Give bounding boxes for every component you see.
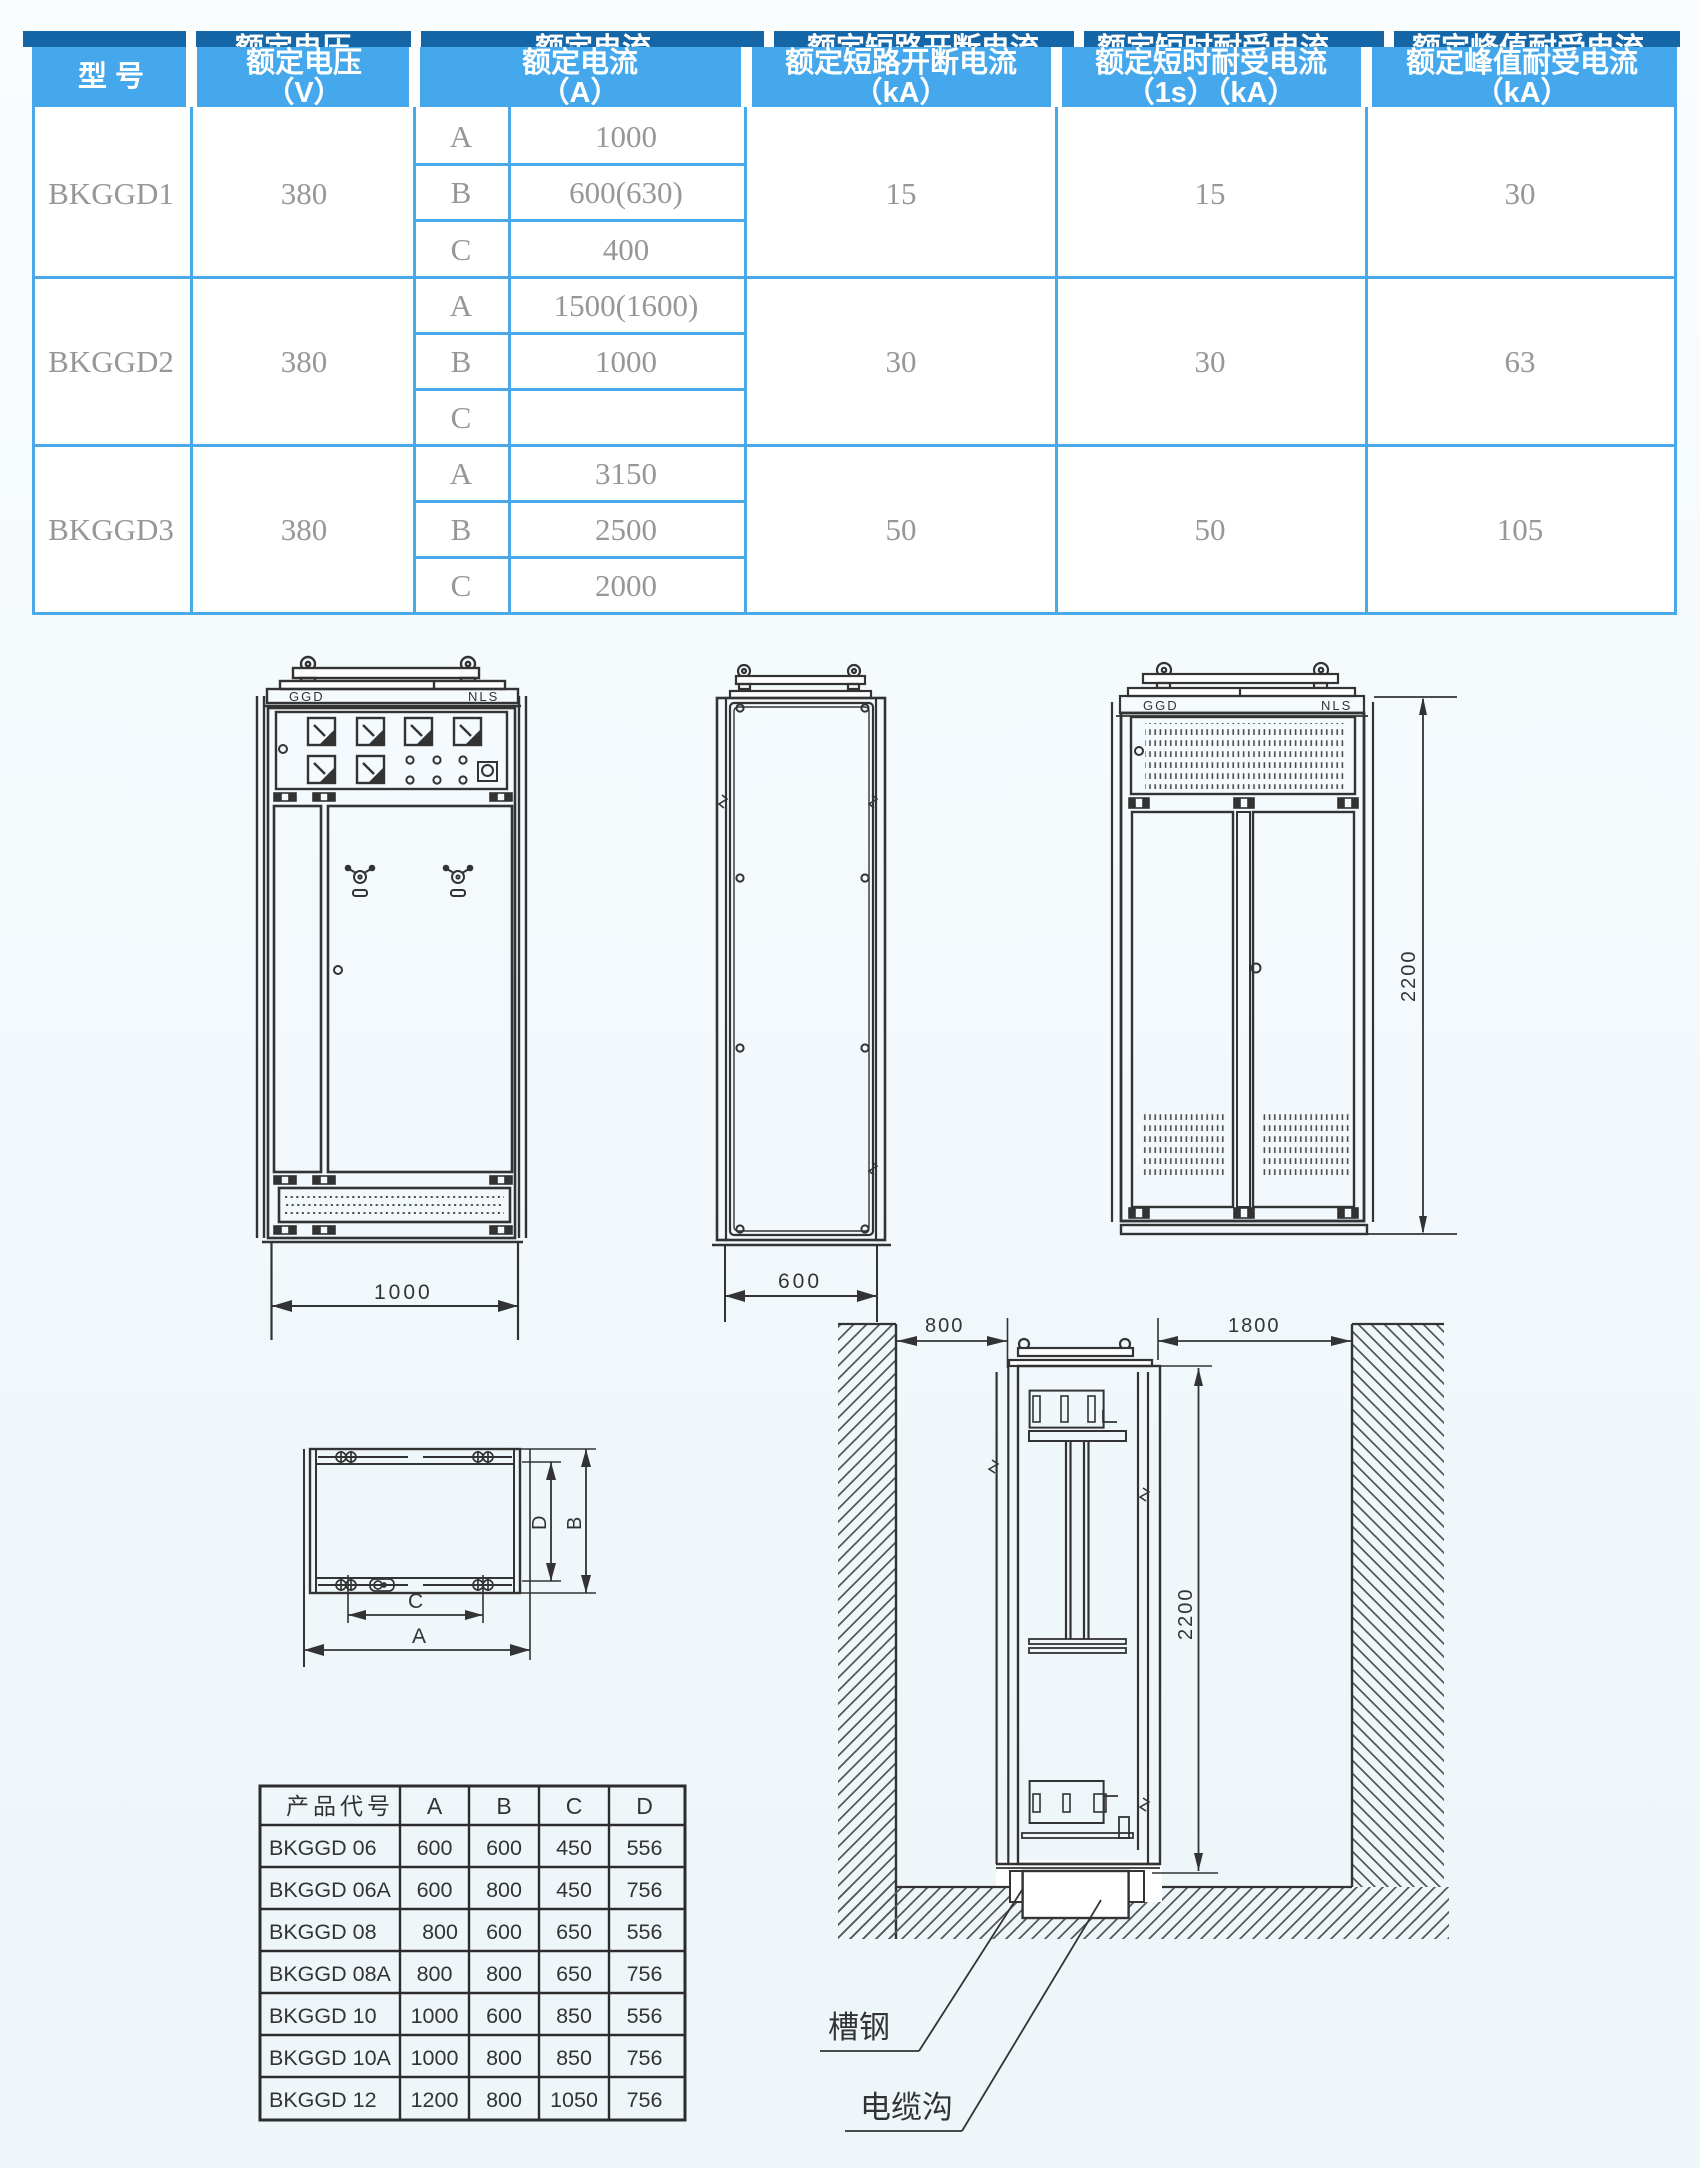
svg-text:A: A (412, 1625, 426, 1648)
svg-text:D: D (529, 1516, 551, 1530)
svg-text:756: 756 (627, 1962, 663, 1986)
svg-text:1000: 1000 (374, 1281, 433, 1304)
svg-text:C: C (566, 1793, 583, 1819)
svg-text:BKGGD 06: BKGGD 06 (269, 1836, 377, 1860)
svg-text:BKGGD 12: BKGGD 12 (269, 2088, 377, 2112)
svg-text:800: 800 (486, 2088, 522, 2112)
svg-text:1200: 1200 (411, 2088, 459, 2112)
svg-text:800: 800 (422, 1920, 458, 1944)
svg-text:450: 450 (556, 1836, 592, 1860)
svg-text:BKGGD 08A: BKGGD 08A (269, 1962, 392, 1986)
svg-text:C: C (408, 1590, 423, 1613)
svg-text:756: 756 (627, 1878, 663, 1902)
svg-text:756: 756 (627, 2046, 663, 2070)
svg-text:GGD: GGD (1143, 698, 1179, 713)
svg-text:650: 650 (556, 1962, 592, 1986)
svg-text:B: B (564, 1517, 586, 1530)
svg-text:600: 600 (778, 1270, 822, 1293)
svg-text:BKGGD 08: BKGGD 08 (269, 1920, 377, 1944)
svg-text:800: 800 (925, 1315, 964, 1337)
svg-text:产品代号: 产品代号 (286, 1793, 394, 1819)
svg-text:800: 800 (486, 1962, 522, 1986)
svg-text:450: 450 (556, 1878, 592, 1902)
svg-text:600: 600 (486, 2004, 522, 2028)
svg-text:B: B (496, 1793, 511, 1819)
svg-text:NLS: NLS (468, 689, 499, 704)
svg-text:NLS: NLS (1321, 698, 1352, 713)
svg-text:电缆沟: 电缆沟 (860, 2090, 953, 2125)
svg-text:1050: 1050 (550, 2088, 598, 2112)
svg-text:A: A (427, 1793, 443, 1819)
svg-text:556: 556 (627, 2004, 663, 2028)
svg-text:600: 600 (417, 1836, 453, 1860)
svg-text:1800: 1800 (1228, 1315, 1281, 1337)
svg-text:BKGGD 06A: BKGGD 06A (269, 1878, 392, 1902)
svg-text:850: 850 (556, 2046, 592, 2070)
svg-text:D: D (636, 1793, 653, 1819)
svg-text:BKGGD 10A: BKGGD 10A (269, 2046, 392, 2070)
svg-text:2200: 2200 (1398, 950, 1420, 1003)
svg-text:GGD: GGD (289, 689, 325, 704)
svg-text:1000: 1000 (411, 2046, 459, 2070)
svg-text:800: 800 (486, 1878, 522, 1902)
svg-text:BKGGD 10: BKGGD 10 (269, 2004, 377, 2028)
svg-text:1000: 1000 (411, 2004, 459, 2028)
svg-text:600: 600 (486, 1920, 522, 1944)
svg-text:800: 800 (417, 1962, 453, 1986)
svg-text:850: 850 (556, 2004, 592, 2028)
svg-text:槽钢: 槽钢 (828, 2010, 890, 2045)
svg-text:756: 756 (627, 2088, 663, 2112)
svg-text:556: 556 (627, 1920, 663, 1944)
svg-text:600: 600 (417, 1878, 453, 1902)
svg-text:600: 600 (486, 1836, 522, 1860)
svg-text:2200: 2200 (1175, 1588, 1197, 1641)
svg-text:800: 800 (486, 2046, 522, 2070)
svg-text:650: 650 (556, 1920, 592, 1944)
svg-text:556: 556 (627, 1836, 663, 1860)
